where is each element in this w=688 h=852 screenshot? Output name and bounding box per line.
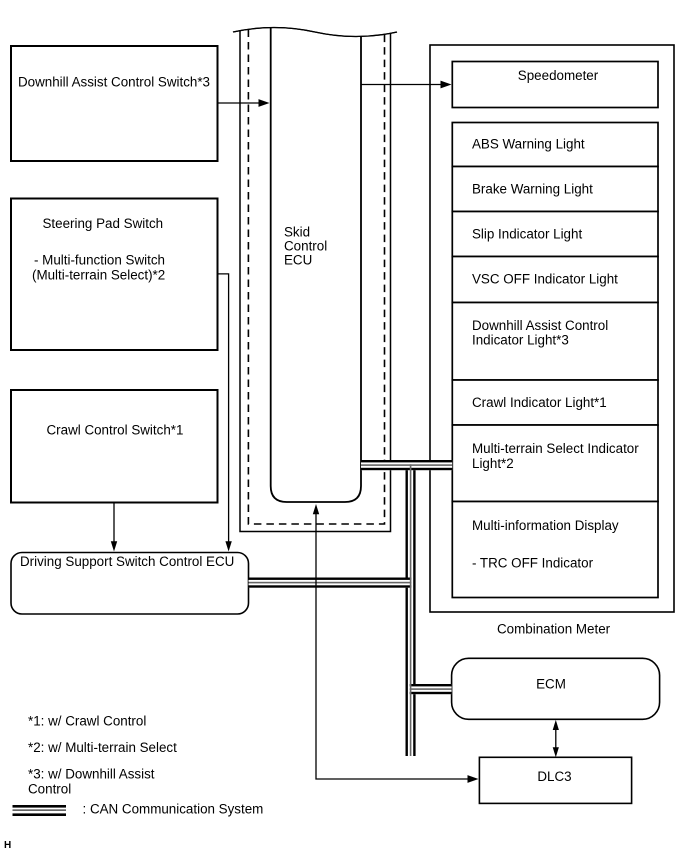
- svg-text:(Multi-terrain Select)*2: (Multi-terrain Select)*2: [32, 268, 165, 283]
- svg-text:Light*2: Light*2: [472, 456, 514, 471]
- svg-text:Control: Control: [284, 239, 327, 254]
- svg-text:Steering Pad Switch: Steering Pad Switch: [43, 216, 164, 231]
- svg-text:ECU: ECU: [284, 253, 312, 268]
- svg-text:Slip Indicator Light: Slip Indicator Light: [472, 227, 582, 242]
- svg-text:Driving Support Switch Control: Driving Support Switch Control ECU: [20, 554, 234, 569]
- svg-text:Speedometer: Speedometer: [518, 68, 599, 83]
- svg-text:H: H: [4, 840, 11, 851]
- svg-text:ABS Warning Light: ABS Warning Light: [472, 137, 585, 152]
- svg-text:- Multi-function Switch: - Multi-function Switch: [34, 253, 165, 268]
- svg-text:Downhill Assist Control: Downhill Assist Control: [472, 318, 608, 333]
- svg-text:ECM: ECM: [536, 676, 566, 691]
- svg-text:- TRC OFF Indicator: - TRC OFF Indicator: [472, 556, 594, 571]
- svg-text:*2: w/ Multi-terrain Select: *2: w/ Multi-terrain Select: [28, 740, 177, 755]
- svg-text:Crawl Indicator Light*1: Crawl Indicator Light*1: [472, 395, 607, 410]
- svg-text:Control: Control: [28, 782, 71, 797]
- svg-text:Combination Meter: Combination Meter: [497, 622, 611, 637]
- svg-text:Multi-information Display: Multi-information Display: [472, 518, 619, 533]
- svg-text:: CAN Communication System: : CAN Communication System: [83, 801, 264, 816]
- svg-text:Brake Warning Light: Brake Warning Light: [472, 182, 593, 197]
- svg-text:Crawl Control Switch*1: Crawl Control Switch*1: [47, 423, 184, 438]
- svg-text:Skid: Skid: [284, 225, 310, 240]
- svg-text:Downhill Assist Control Switch: Downhill Assist Control Switch*3: [18, 74, 210, 89]
- svg-text:DLC3: DLC3: [537, 769, 571, 784]
- svg-text:Multi-terrain Select Indicator: Multi-terrain Select Indicator: [472, 441, 639, 456]
- svg-text:VSC OFF Indicator Light: VSC OFF Indicator Light: [472, 272, 618, 287]
- svg-text:Indicator Light*3: Indicator Light*3: [472, 333, 569, 348]
- svg-text:*3: w/ Downhill Assist: *3: w/ Downhill Assist: [28, 766, 155, 781]
- svg-text:*1: w/ Crawl Control: *1: w/ Crawl Control: [28, 714, 146, 729]
